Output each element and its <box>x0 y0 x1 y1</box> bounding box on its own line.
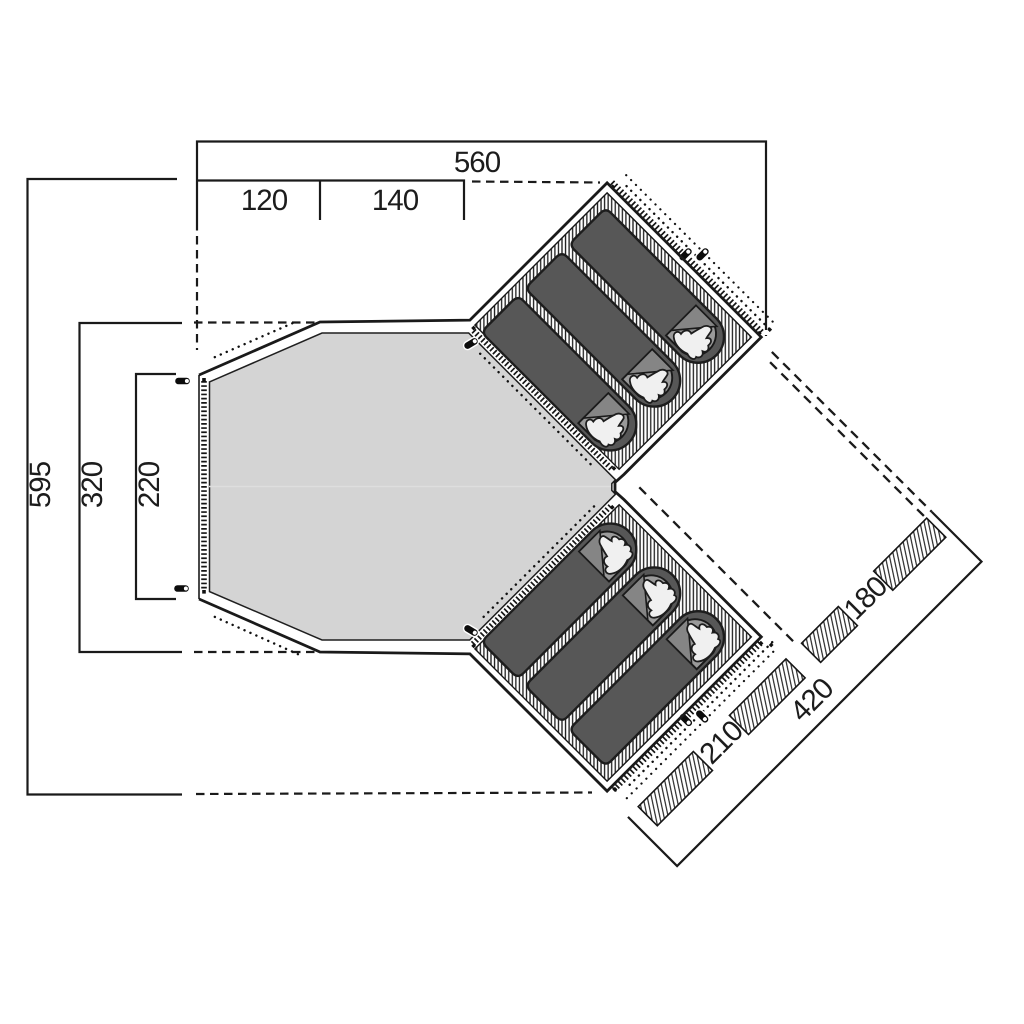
svg-text:560: 560 <box>454 146 501 179</box>
svg-text:140: 140 <box>372 184 419 217</box>
svg-text:320: 320 <box>76 461 109 508</box>
svg-text:120: 120 <box>241 184 288 217</box>
svg-text:595: 595 <box>24 461 57 508</box>
svg-text:220: 220 <box>133 461 166 508</box>
